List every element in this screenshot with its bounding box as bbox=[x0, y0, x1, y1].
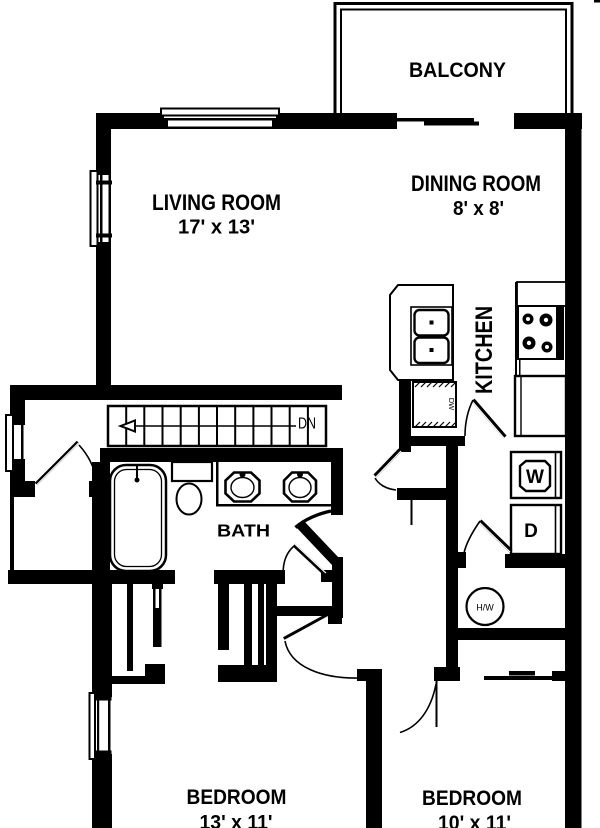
svg-text:17' x 13': 17' x 13' bbox=[178, 217, 255, 239]
svg-text:DINING ROOM: DINING ROOM bbox=[411, 171, 541, 196]
svg-text:DW: DW bbox=[447, 398, 456, 411]
svg-text:10' x 11': 10' x 11' bbox=[438, 813, 511, 828]
svg-text:BEDROOM: BEDROOM bbox=[187, 786, 287, 809]
svg-text:LIVING ROOM: LIVING ROOM bbox=[152, 190, 281, 215]
svg-text:DN: DN bbox=[298, 416, 316, 433]
svg-text:8' x 8': 8' x 8' bbox=[453, 198, 504, 220]
svg-text:W: W bbox=[526, 467, 544, 488]
svg-text:BEDROOM: BEDROOM bbox=[422, 787, 522, 810]
svg-text:BALCONY: BALCONY bbox=[409, 59, 506, 82]
svg-text:D: D bbox=[524, 521, 538, 542]
svg-text:KITCHEN: KITCHEN bbox=[471, 306, 498, 394]
svg-text:H/W: H/W bbox=[476, 603, 494, 613]
svg-text:BATH: BATH bbox=[217, 521, 270, 541]
svg-text:13' x 11': 13' x 11' bbox=[200, 812, 273, 828]
